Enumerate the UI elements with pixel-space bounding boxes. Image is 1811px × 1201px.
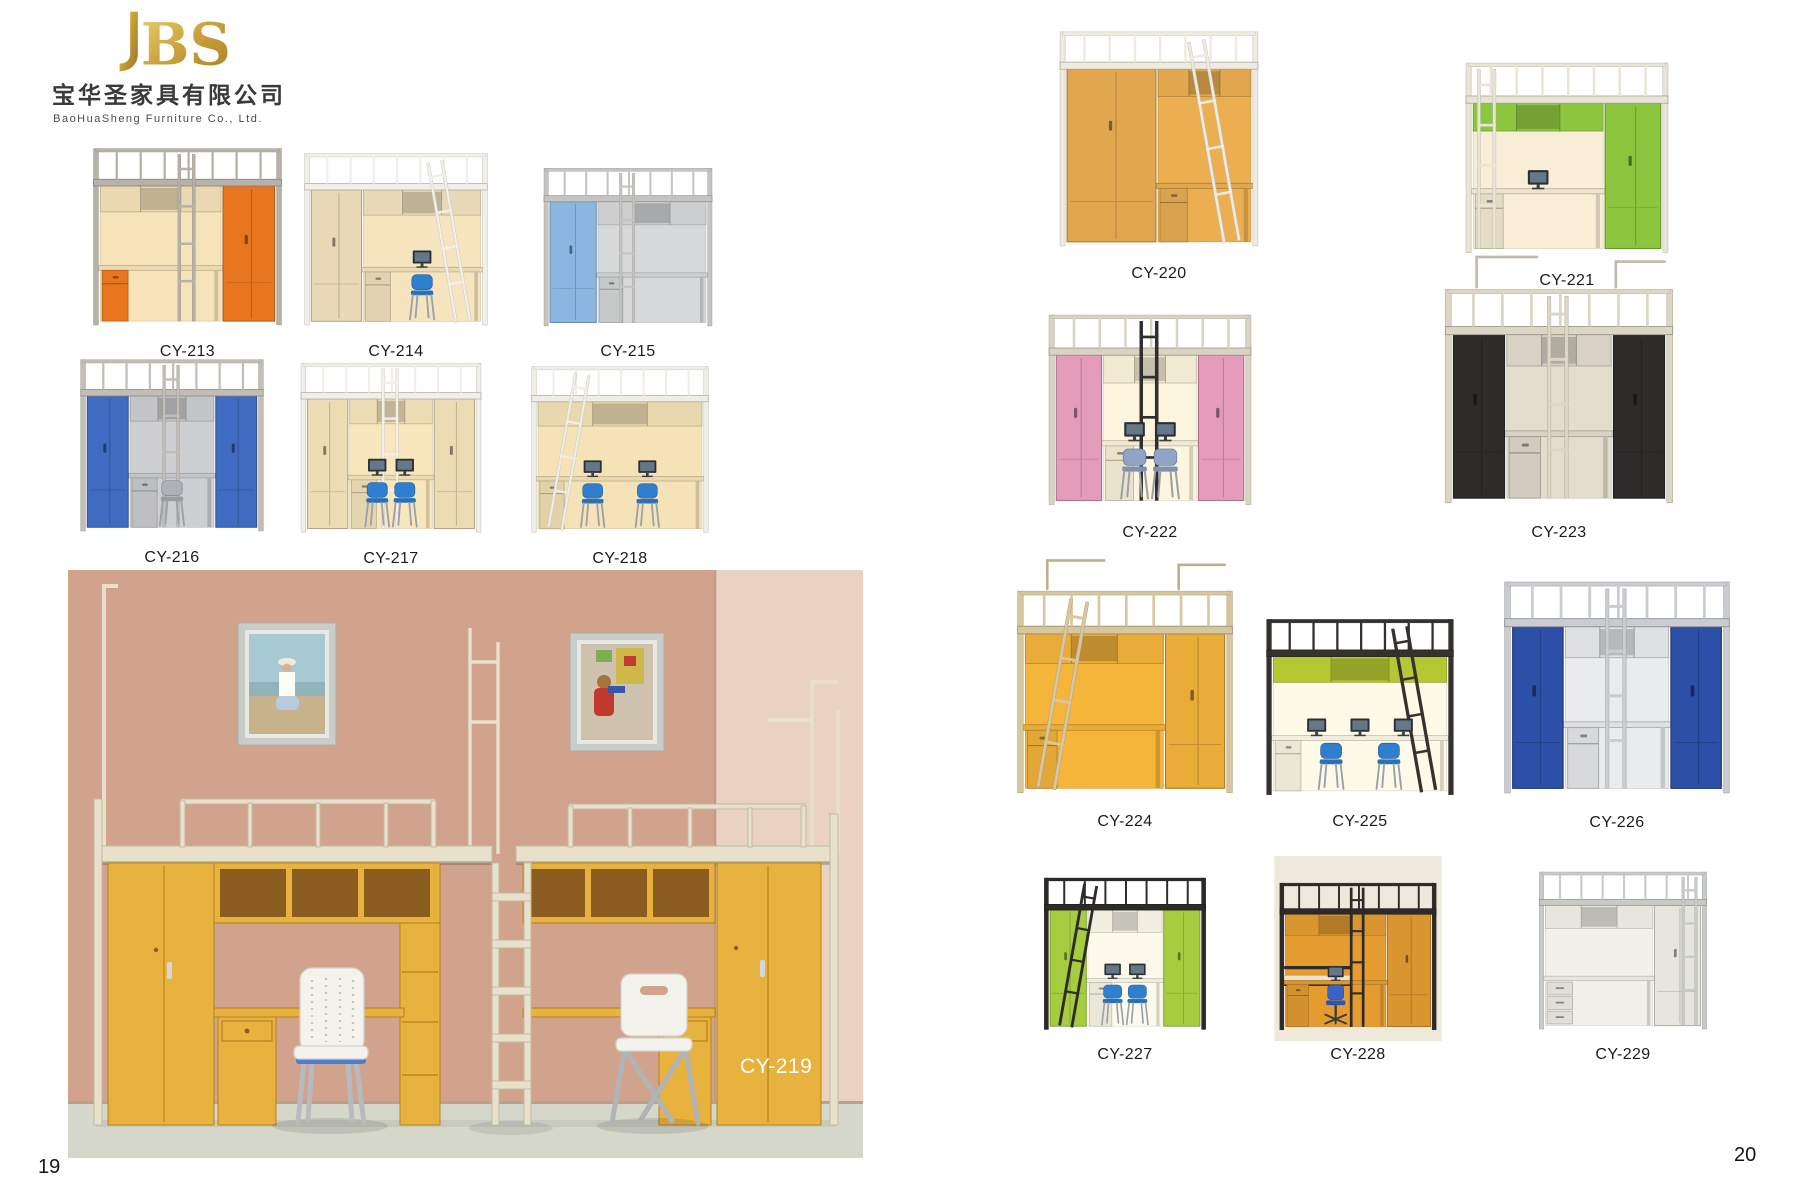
product-illustration: [1256, 856, 1460, 1041]
product-code-label: CY-225: [1260, 808, 1460, 832]
product-code-label: CY-216: [74, 544, 270, 568]
product-code-label: CY-226: [1483, 809, 1751, 832]
company-name-chinese: 宝华圣家具有限公司: [52, 76, 264, 110]
product-CY-215: CY-215: [538, 126, 718, 362]
product-illustration: [85, 116, 290, 338]
page-number-right: 20: [1734, 1144, 1756, 1167]
product-CY-226: CY-226: [1483, 543, 1751, 832]
product-CY-216: CY-216: [74, 328, 270, 568]
catalog-page: BS 宝华圣家具有限公司 BaoHuaSheng Furniture Co., …: [0, 0, 1811, 1201]
product-code-label: CY-217: [288, 545, 494, 568]
product-CY-220: CY-220: [1053, 10, 1265, 284]
room-photo-illustration: CY-219: [68, 570, 863, 1158]
product-CY-229: CY-229: [1495, 843, 1751, 1064]
product-code-label: CY-222: [1024, 519, 1276, 542]
product-CY-223: CY-223: [1424, 250, 1694, 542]
page-number-left: 19: [38, 1156, 60, 1179]
room-photo-product: CY-219: [68, 570, 863, 1158]
product-illustration: [1444, 28, 1690, 267]
product-illustration: [1260, 563, 1460, 808]
product-illustration: [1424, 250, 1694, 519]
product-CY-222: CY-222: [1024, 280, 1276, 542]
product-code-label: CY-228: [1256, 1041, 1460, 1064]
framed-picture-right: [570, 633, 664, 751]
catalog-spread: { "logo": { "monogram": "BS", "company_c…: [0, 0, 1811, 1201]
product-illustration: [1010, 546, 1240, 808]
logo-monogram-icon: BS: [83, 4, 233, 76]
product-illustration: [1495, 843, 1751, 1041]
product-illustration: [538, 126, 718, 338]
product-code-label: CY-224: [1010, 808, 1240, 832]
product-CY-217: CY-217: [288, 332, 494, 568]
product-CY-213: CY-213: [85, 116, 290, 362]
product-code-label: CY-229: [1495, 1041, 1751, 1064]
product-CY-214: CY-214: [298, 122, 494, 362]
product-illustration: [298, 122, 494, 338]
product-illustration: [514, 336, 726, 545]
product-CY-224: CY-224: [1010, 546, 1240, 832]
product-CY-228: CY-228: [1256, 856, 1460, 1064]
product-illustration: [1010, 850, 1240, 1041]
product-illustration: [288, 332, 494, 545]
product-CY-218: CY-218: [514, 336, 726, 568]
product-code-label: CY-218: [514, 545, 726, 568]
product-illustration: [74, 328, 270, 544]
product-CY-227: CY-227: [1010, 850, 1240, 1064]
product-CY-225: CY-225: [1260, 563, 1460, 832]
company-logo: BS 宝华圣家具有限公司 BaoHuaSheng Furniture Co., …: [52, 4, 264, 125]
product-code-label: CY-227: [1010, 1041, 1240, 1064]
product-illustration: [1024, 280, 1276, 519]
product-illustration: [1053, 10, 1265, 260]
product-code-label: CY-223: [1424, 519, 1694, 542]
photo-product-code-label: CY-219: [740, 1055, 812, 1078]
framed-picture-left: [238, 623, 336, 745]
product-illustration: [1483, 543, 1751, 809]
logo-monogram-text: BS: [141, 10, 231, 76]
logo-bracket-stroke: [120, 12, 134, 68]
